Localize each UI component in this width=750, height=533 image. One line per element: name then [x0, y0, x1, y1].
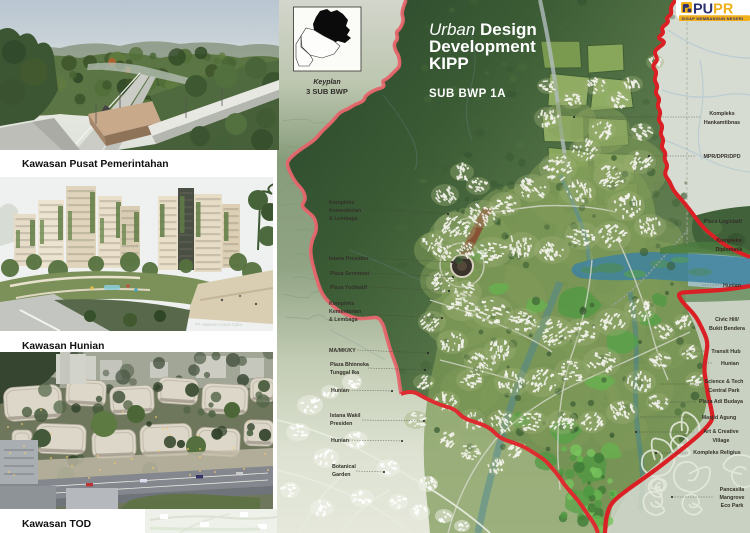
svg-text:Kompleks: Kompleks [716, 238, 741, 244]
svg-text:Central Park: Central Park [708, 388, 739, 394]
svg-text:Hunian: Hunian [331, 388, 349, 394]
svg-text:Plaza Bhinneka: Plaza Bhinneka [330, 362, 369, 368]
svg-text:Presiden: Presiden [330, 421, 352, 427]
svg-text:Istana Wakil: Istana Wakil [330, 413, 361, 419]
svg-text:3 SUB BWP: 3 SUB BWP [306, 87, 348, 96]
svg-text:Pancasila: Pancasila [720, 487, 744, 493]
svg-text:Istana Presiden: Istana Presiden [329, 256, 368, 262]
svg-text:Science & Tech: Science & Tech [705, 379, 744, 385]
svg-text:MPR/DPR/DPD: MPR/DPR/DPD [703, 154, 740, 160]
svg-text:Hunian: Hunian [331, 438, 349, 444]
svg-text:Masjid Agung: Masjid Agung [702, 415, 737, 421]
svg-text:Kawasan Pusat Pemerintahan: Kawasan Pusat Pemerintahan [22, 159, 169, 170]
svg-text:& Lembaga: & Lembaga [329, 317, 358, 323]
svg-text:Kawasan Hunian: Kawasan Hunian [22, 341, 104, 352]
svg-text:Plaza Adi Budaya: Plaza Adi Budaya [699, 399, 743, 405]
svg-text:Kompleks: Kompleks [329, 200, 354, 206]
svg-text:Village: Village [713, 438, 730, 444]
svg-text:Bukit Bendera: Bukit Bendera [709, 326, 745, 332]
svg-text:Civic Hill/: Civic Hill/ [715, 317, 739, 323]
svg-text:Plaza Seremoni: Plaza Seremoni [330, 271, 370, 277]
svg-text:Kementerian: Kementerian [329, 309, 361, 315]
svg-text:Kompleks: Kompleks [709, 111, 734, 117]
svg-text:Transit Hub: Transit Hub [711, 349, 741, 355]
svg-text:Kawasan TOD: Kawasan TOD [22, 519, 91, 530]
svg-text:Plaza Legislatif: Plaza Legislatif [704, 219, 743, 225]
svg-text:KIPP: KIPP [429, 54, 469, 73]
svg-text:Botanical: Botanical [332, 464, 356, 470]
svg-text:Hunian: Hunian [721, 361, 739, 367]
svg-text:Art & Creative: Art & Creative [703, 429, 738, 435]
svg-text:SUB BWP 1A: SUB BWP 1A [429, 88, 506, 100]
svg-text:Kompleks Religius: Kompleks Religius [693, 450, 740, 456]
svg-text:Garden: Garden [332, 472, 351, 478]
svg-text:SIGAP MEMBANGUN NEGERI: SIGAP MEMBANGUN NEGERI [682, 16, 744, 21]
svg-text:PT. Mataram Surya Cipta: PT. Mataram Surya Cipta [195, 322, 242, 327]
svg-text:Hunian: Hunian [723, 283, 741, 289]
svg-text:Plaza Yudikatif: Plaza Yudikatif [330, 285, 367, 291]
svg-text:MA/MK/KY: MA/MK/KY [329, 348, 356, 354]
svg-text:Mangrove: Mangrove [719, 495, 744, 501]
svg-text:Diplomatik: Diplomatik [715, 247, 742, 253]
svg-text:Kementerian: Kementerian [329, 208, 361, 214]
svg-text:Eco Park: Eco Park [721, 503, 744, 509]
svg-text:& Lembaga: & Lembaga [329, 216, 358, 222]
svg-text:Tunggal Ika: Tunggal Ika [330, 370, 359, 376]
svg-text:Keyplan: Keyplan [313, 79, 340, 86]
svg-text:Hankamtibnas: Hankamtibnas [704, 120, 740, 126]
svg-text:Kompleks: Kompleks [329, 301, 354, 307]
